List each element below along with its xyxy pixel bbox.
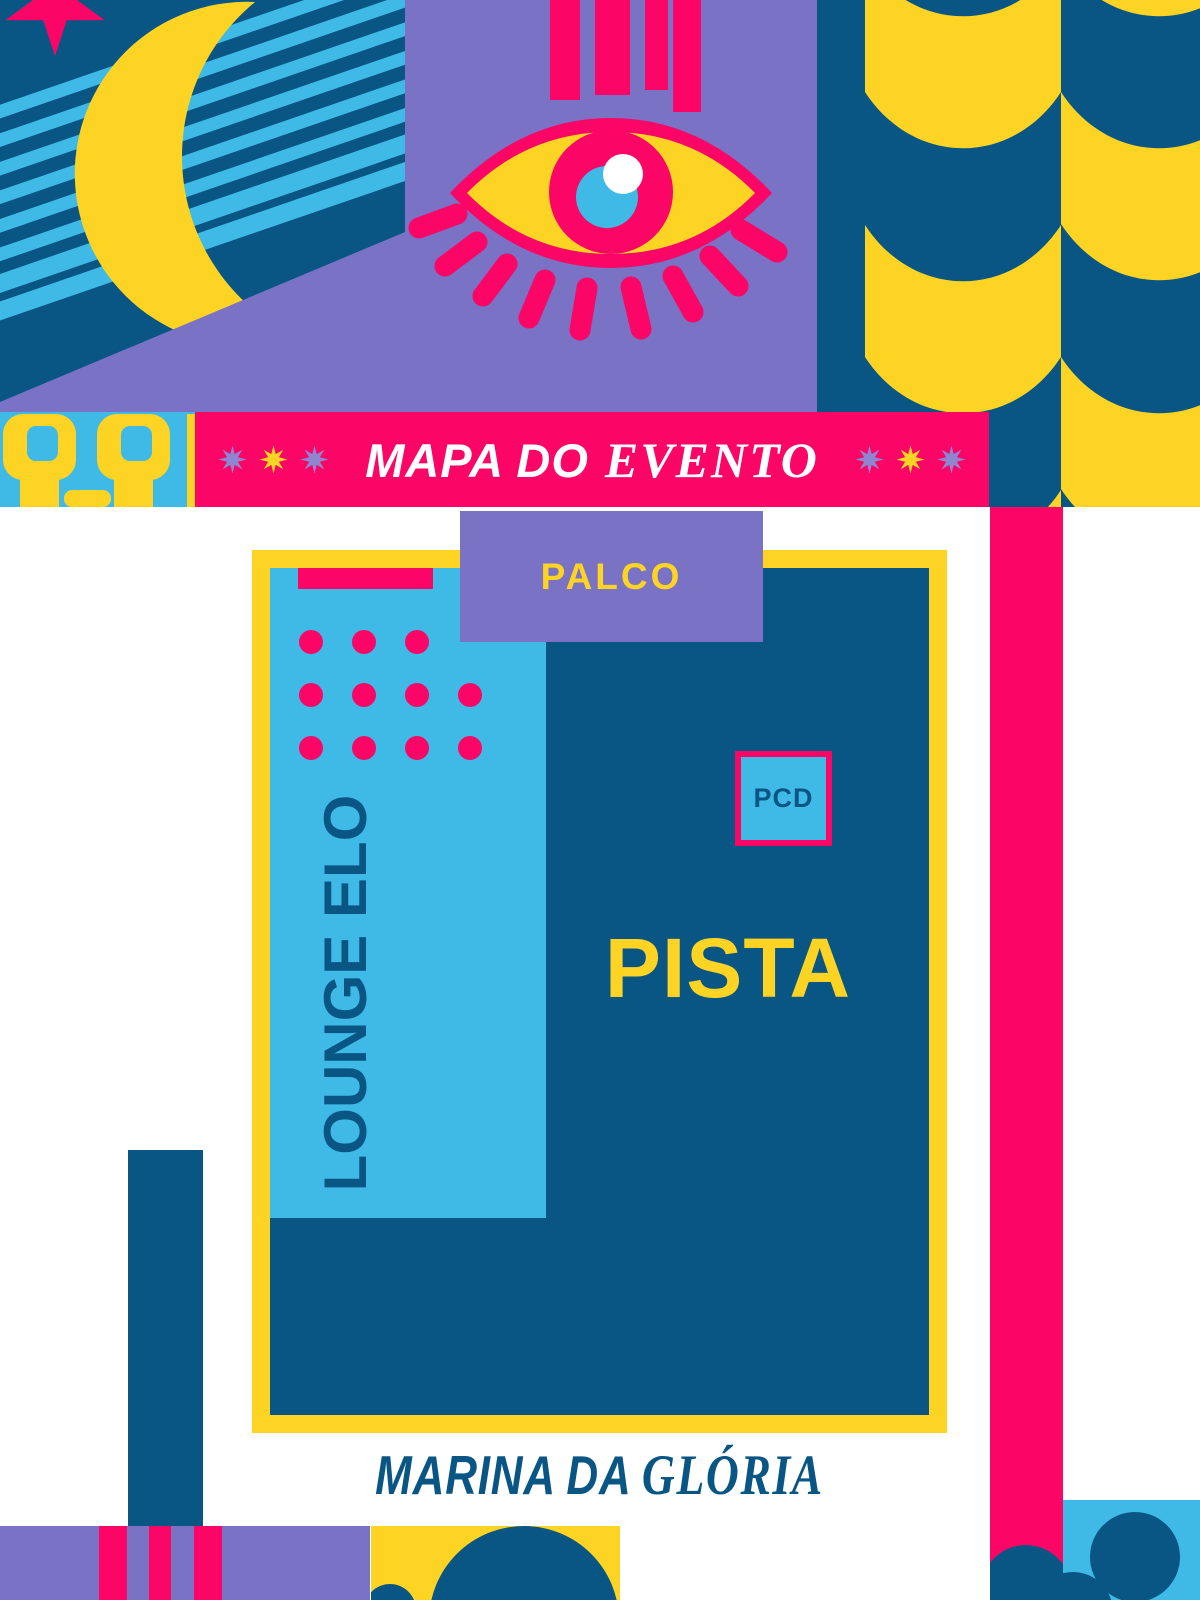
top-left-tile xyxy=(0,0,405,412)
dot xyxy=(299,630,323,654)
bottom-purple-tile xyxy=(0,1526,370,1600)
starburst-icon xyxy=(216,443,249,476)
eye-icon xyxy=(405,0,817,412)
eye-tile xyxy=(405,0,817,412)
starburst-icon xyxy=(298,443,331,476)
bottom-blue-tile xyxy=(1063,1500,1200,1600)
starburst-icon xyxy=(894,443,927,476)
lounge-area: LOUNGE ELO xyxy=(270,568,546,1218)
pavement-pattern-tile xyxy=(0,412,195,507)
pink-bar xyxy=(99,1526,127,1600)
dancefloor-area: PISTA ÁREA PATROCINADORES PCD xyxy=(270,568,929,1415)
navy-circle xyxy=(371,1584,416,1600)
dot xyxy=(299,683,323,707)
dot xyxy=(352,630,376,654)
pink-bar xyxy=(194,1526,222,1600)
starburst-icon xyxy=(935,443,968,476)
footer-venue-name: MARINA DA GLÓRIA xyxy=(322,1440,878,1510)
eye-highlight xyxy=(603,154,643,194)
starburst-group-left xyxy=(216,443,331,476)
dot xyxy=(405,630,429,654)
eye-rays xyxy=(550,0,701,112)
dancefloor-label: PISTA xyxy=(578,926,878,1010)
venue-name-primary: MARINA xyxy=(375,1443,556,1507)
pcd-label: PCD xyxy=(753,783,813,814)
banner-title-secondary: EVENTO xyxy=(605,431,819,489)
starburst-group-right xyxy=(853,443,968,476)
navy-circle xyxy=(990,1545,1063,1600)
banner-title-primary: MAPA DO xyxy=(365,433,589,488)
bottom-yellow-tile xyxy=(371,1526,620,1600)
dot xyxy=(352,736,376,760)
venue-name-secondary: GLÓRIA xyxy=(642,1443,824,1508)
lounge-label: LOUNGE ELO xyxy=(320,793,370,1193)
stage-label: PALCO xyxy=(541,556,683,598)
dot xyxy=(299,736,323,760)
left-navy-stripe xyxy=(128,1150,203,1526)
dot xyxy=(352,683,376,707)
pcd-box: PCD xyxy=(735,751,832,846)
venue-map-frame: PISTA ÁREA PATROCINADORES PCD xyxy=(252,550,947,1433)
right-pink-stripe xyxy=(990,507,1063,1600)
stage-block: PALCO xyxy=(460,511,763,642)
event-map-banner: MAPA DO EVENTO xyxy=(195,412,989,507)
lounge-accent-bar xyxy=(298,568,433,589)
navy-circle xyxy=(429,1526,619,1600)
dot xyxy=(405,683,429,707)
pink-bar xyxy=(149,1526,171,1600)
starburst-icon xyxy=(853,443,886,476)
dot xyxy=(458,736,482,760)
venue-name-connector: DA xyxy=(566,1443,631,1507)
starburst-icon xyxy=(257,443,290,476)
dot xyxy=(405,736,429,760)
dot xyxy=(458,683,482,707)
event-map-poster: MAPA DO EVENTO PISTA ÁREA PATROCINADORES… xyxy=(0,0,1200,1600)
banner-title: MAPA DO EVENTO xyxy=(365,431,819,489)
